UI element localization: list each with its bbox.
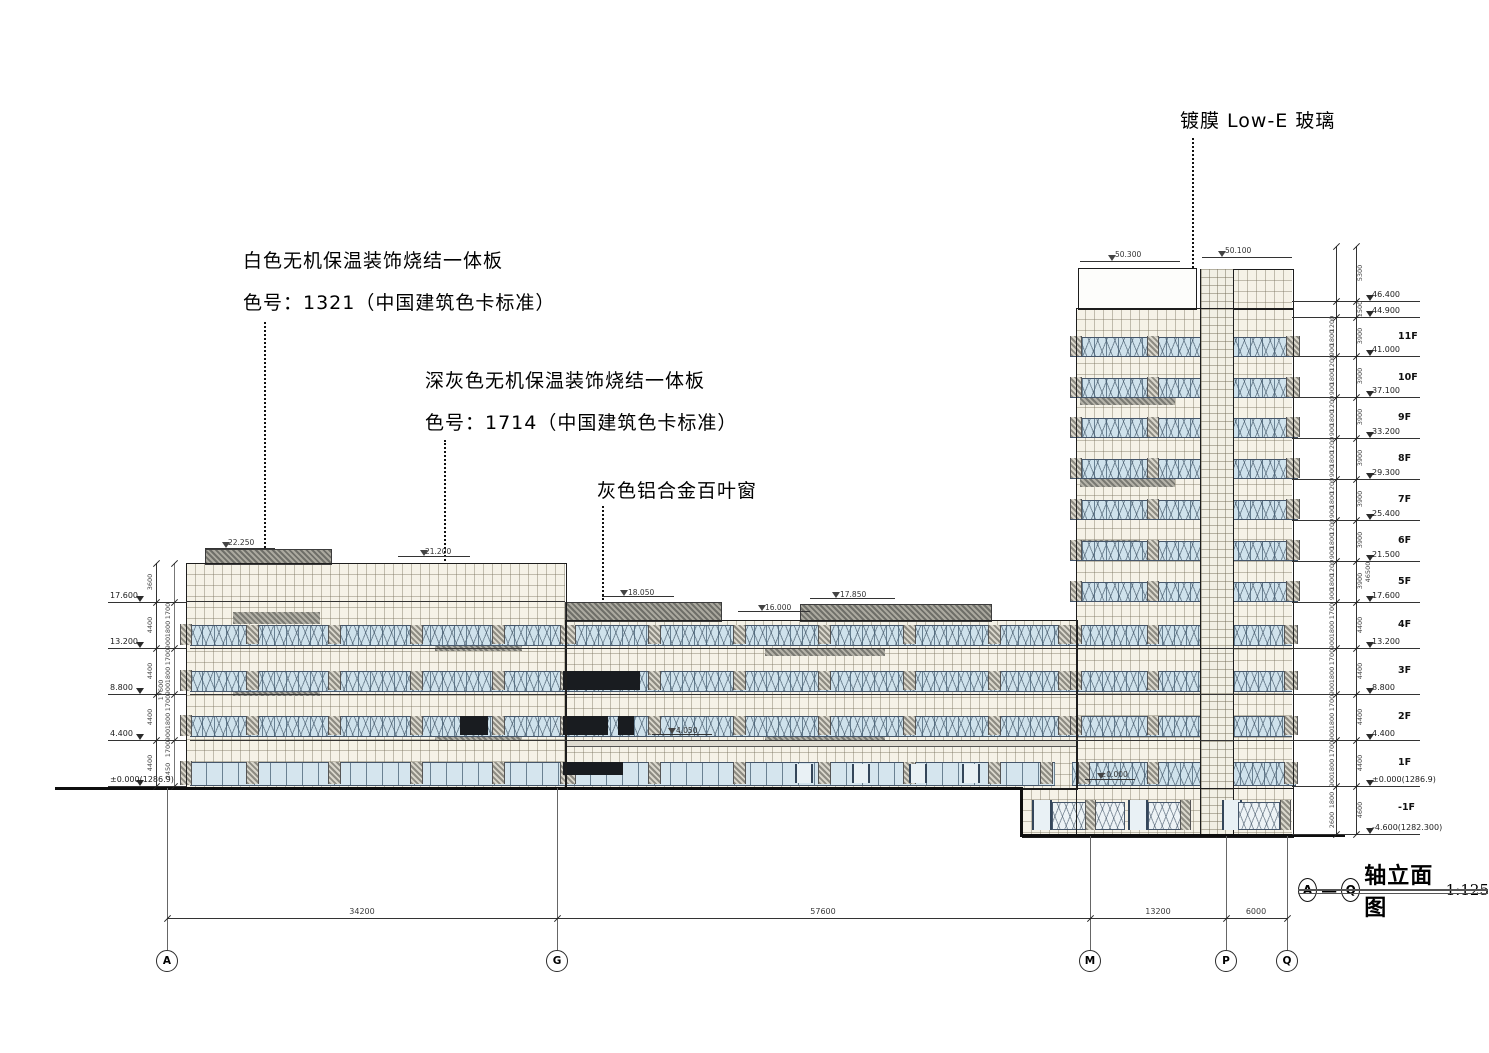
background:#7d7867; (190, 648, 1292, 649)
shape (1358, 694, 1420, 695)
axis-line (1287, 836, 1288, 950)
shape (1358, 740, 1420, 741)
dim-sub-right: 1700 (1328, 649, 1336, 666)
level-text-right: 17.600 (1372, 591, 1400, 600)
axis-span-dim: 57600 (810, 907, 835, 916)
background:#999; (1292, 479, 1358, 480)
level-text-right: 13.200 (1372, 637, 1400, 646)
background:#999; (1292, 786, 1358, 787)
floor-label: 1F (1398, 757, 1411, 768)
level-text-right: 29.300 (1372, 468, 1400, 477)
outline-mid-block (565, 620, 1078, 790)
dim-sub-right: 1800 (1328, 792, 1336, 809)
dim-story-right: 3900 (1356, 409, 1364, 426)
background:#999; (1292, 397, 1358, 398)
shape (1358, 834, 1420, 835)
roof-level-text: 22.250 (228, 538, 254, 547)
floor-label: -1F (1398, 802, 1415, 813)
shape (1358, 648, 1420, 649)
dim-story-right: 4400 (1356, 617, 1364, 634)
roof-level-triangle (668, 728, 676, 734)
floor-label: 5F (1398, 576, 1411, 587)
level-text-right: ±0.000(1286.9) (1372, 775, 1436, 784)
title-underline-2 (1298, 893, 1488, 894)
floor-label: 11F (1398, 331, 1418, 342)
shape (810, 598, 895, 599)
dim-line (174, 563, 175, 786)
shape (1358, 438, 1420, 439)
background:#777; (167, 918, 1287, 919)
background:#999; (1292, 356, 1358, 357)
dim-sub-right: 1700 (1328, 603, 1336, 620)
tower-roof-screen (1078, 268, 1197, 310)
ground-line (55, 787, 1022, 790)
axis-line (167, 788, 168, 950)
dim-story-right: 3900 (1356, 573, 1364, 590)
ground-step (1020, 787, 1023, 836)
elevation-drawing-sheet: 镀膜 Low-E 玻璃 白色无机保温装饰烧结一体板 色号：1321（中国建筑色卡… (0, 0, 1489, 1053)
roof-level-triangle (1097, 773, 1105, 779)
dim-story-right: 4400 (1356, 663, 1364, 680)
background:#999; (1292, 438, 1358, 439)
axis-span-dim: 13200 (1145, 907, 1170, 916)
dim-story-right: 1500 (1356, 301, 1364, 318)
dim-sub-right: 1800 (1328, 621, 1336, 638)
dim-sub-left: 1700 (164, 741, 172, 758)
roof-level-triangle (620, 590, 628, 596)
dim-story-right: 4400 (1356, 755, 1364, 772)
shape (398, 556, 470, 557)
level-text-right: 44.900 (1372, 306, 1400, 315)
dim-sub-right: 1700 (1328, 741, 1336, 758)
roof-level-triangle (1218, 251, 1226, 257)
dim-sub-left: 1800 (164, 621, 172, 638)
outline-basement (1022, 788, 1294, 838)
dim-story-right: 5300 (1356, 265, 1364, 282)
dim-story-right: 4400 (1356, 709, 1364, 726)
shape (602, 596, 674, 597)
dim-story-left: 4400 (146, 709, 154, 726)
dim-sub-right: 900 (1328, 775, 1336, 787)
shape (738, 611, 810, 612)
axis-bubble: G (546, 950, 568, 972)
level-text-right: 4.400 (1372, 729, 1395, 738)
axis-bubble: M (1079, 950, 1101, 972)
shape (1358, 520, 1420, 521)
shape (1358, 317, 1420, 318)
level-text-right: 46.400 (1372, 290, 1400, 299)
level-text-left: 8.800 (110, 683, 133, 692)
facade-graphics: 17.60013.2008.8004.400±0.000(1286.9)3600… (0, 0, 1489, 1053)
shape (1358, 786, 1420, 787)
shape (1085, 779, 1135, 780)
background:#999; (1292, 694, 1358, 695)
flag-triangle (136, 734, 144, 740)
dim-story-left: 4400 (146, 663, 154, 680)
level-text-left: 13.200 (110, 637, 138, 646)
background:#999; (1292, 301, 1358, 302)
outline-left-block (186, 563, 567, 790)
axis-line (1090, 836, 1091, 950)
shape (1358, 397, 1420, 398)
background:#999; (1292, 648, 1358, 649)
floor-label: 3F (1398, 665, 1411, 676)
roof-level-text: 50.300 (1115, 250, 1141, 259)
axis-line (557, 788, 558, 950)
dim-story-left: 4400 (146, 617, 154, 634)
dim-story-right: 3900 (1356, 450, 1364, 467)
dim-sub-right: 900 (1328, 424, 1336, 436)
background:#999; (1292, 602, 1358, 603)
dim-line (1336, 246, 1337, 834)
axis-span-dim: 6000 (1246, 907, 1266, 916)
level-text-right: 37.100 (1372, 386, 1400, 395)
dim-overall-right: 46500 (1364, 562, 1372, 583)
dim-sub-left: 1700 (164, 695, 172, 712)
roof-level-triangle (420, 550, 428, 556)
level-text-right: 8.800 (1372, 683, 1395, 692)
dim-sub-left: 900 (164, 637, 172, 649)
floor-label: 10F (1398, 372, 1418, 383)
background:#7d7867; (186, 601, 565, 602)
floor-label: 4F (1398, 619, 1411, 630)
roof-level-triangle (222, 542, 230, 548)
background:#999; (1292, 317, 1358, 318)
roof-level-triangle (832, 592, 840, 598)
axis-span-dim: 34200 (349, 907, 374, 916)
background:#999; (1292, 834, 1358, 835)
background:#999; (1292, 520, 1358, 521)
axis-bubble: Q (1276, 950, 1298, 972)
dim-overall-left: 17600 (157, 680, 165, 701)
shape (205, 548, 275, 549)
level-text-right: 21.500 (1372, 550, 1400, 559)
background:#999; (1292, 561, 1358, 562)
dim-story-left: 3600 (146, 574, 154, 591)
flag-triangle (136, 688, 144, 694)
background:#999; (1292, 740, 1358, 741)
title-underline (1298, 889, 1488, 891)
dim-sub-right: 900 (1328, 383, 1336, 395)
level-text-left: 17.600 (110, 591, 138, 600)
shape (652, 734, 712, 735)
dim-sub-left: 1800 (164, 713, 172, 730)
dim-sub-right: 900 (1328, 588, 1336, 600)
level-text-right: -4.600(1282.300) (1372, 823, 1442, 832)
dim-sub-right: 900 (1328, 729, 1336, 741)
dim-sub-left: 900 (164, 729, 172, 741)
axis-line (1226, 836, 1227, 950)
level-text-right: 41.000 (1372, 345, 1400, 354)
roof-level-triangle (1108, 255, 1116, 261)
dim-sub-right: 900 (1328, 637, 1336, 649)
dim-line (156, 563, 157, 786)
dim-sub-right: 900 (1328, 465, 1336, 477)
shape (1080, 261, 1180, 262)
floor-label: 6F (1398, 535, 1411, 546)
background:#7d7867; (190, 694, 1292, 695)
shape (1358, 479, 1420, 480)
dim-sub-right: 1800 (1328, 667, 1336, 684)
roof-level-text: 21.200 (425, 547, 451, 556)
dim-sub-right: 900 (1328, 547, 1336, 559)
level-text-right: 33.200 (1372, 427, 1400, 436)
parapet-hatch-mid-1 (565, 602, 722, 622)
floor-label: 2F (1398, 711, 1411, 722)
dim-sub-right: 900 (1328, 683, 1336, 695)
shape (1358, 301, 1420, 302)
floor-label: 8F (1398, 453, 1411, 464)
dim-sub-left: 1700 (164, 649, 172, 666)
shape (1358, 356, 1420, 357)
dim-sub-right: 1700 (1328, 695, 1336, 712)
dim-sub-left: 1700 (164, 603, 172, 620)
dim-story-right: 3900 (1356, 491, 1364, 508)
floor-label: 7F (1398, 494, 1411, 505)
dim-story-right: 3900 (1356, 368, 1364, 385)
background:#7d7867; (190, 740, 1292, 741)
dim-sub-right: 900 (1328, 506, 1336, 518)
outline-tower (1076, 308, 1294, 838)
dim-story-right: 4600 (1356, 802, 1364, 819)
axis-bubble: A (156, 950, 178, 972)
dim-sub-left: 2450 (164, 763, 172, 780)
dim-story-right: 3900 (1356, 328, 1364, 345)
roof-level-text: 50.100 (1225, 246, 1251, 255)
dim-sub-right: 2600 (1328, 812, 1336, 829)
level-text-right: 25.400 (1372, 509, 1400, 518)
dim-story-right: 3900 (1356, 532, 1364, 549)
roof-level-triangle (758, 605, 766, 611)
shape (1202, 257, 1292, 258)
floor-label: 9F (1398, 412, 1411, 423)
dim-sub-left: 900 (164, 683, 172, 695)
axis-bubble: P (1215, 950, 1237, 972)
dim-story-left: 4400 (146, 755, 154, 772)
dim-sub-right: 1800 (1328, 713, 1336, 730)
level-text-left: 4.400 (110, 729, 133, 738)
dim-sub-right: 1800 (1328, 759, 1336, 776)
dim-sub-left: 1800 (164, 667, 172, 684)
shape (1358, 602, 1420, 603)
